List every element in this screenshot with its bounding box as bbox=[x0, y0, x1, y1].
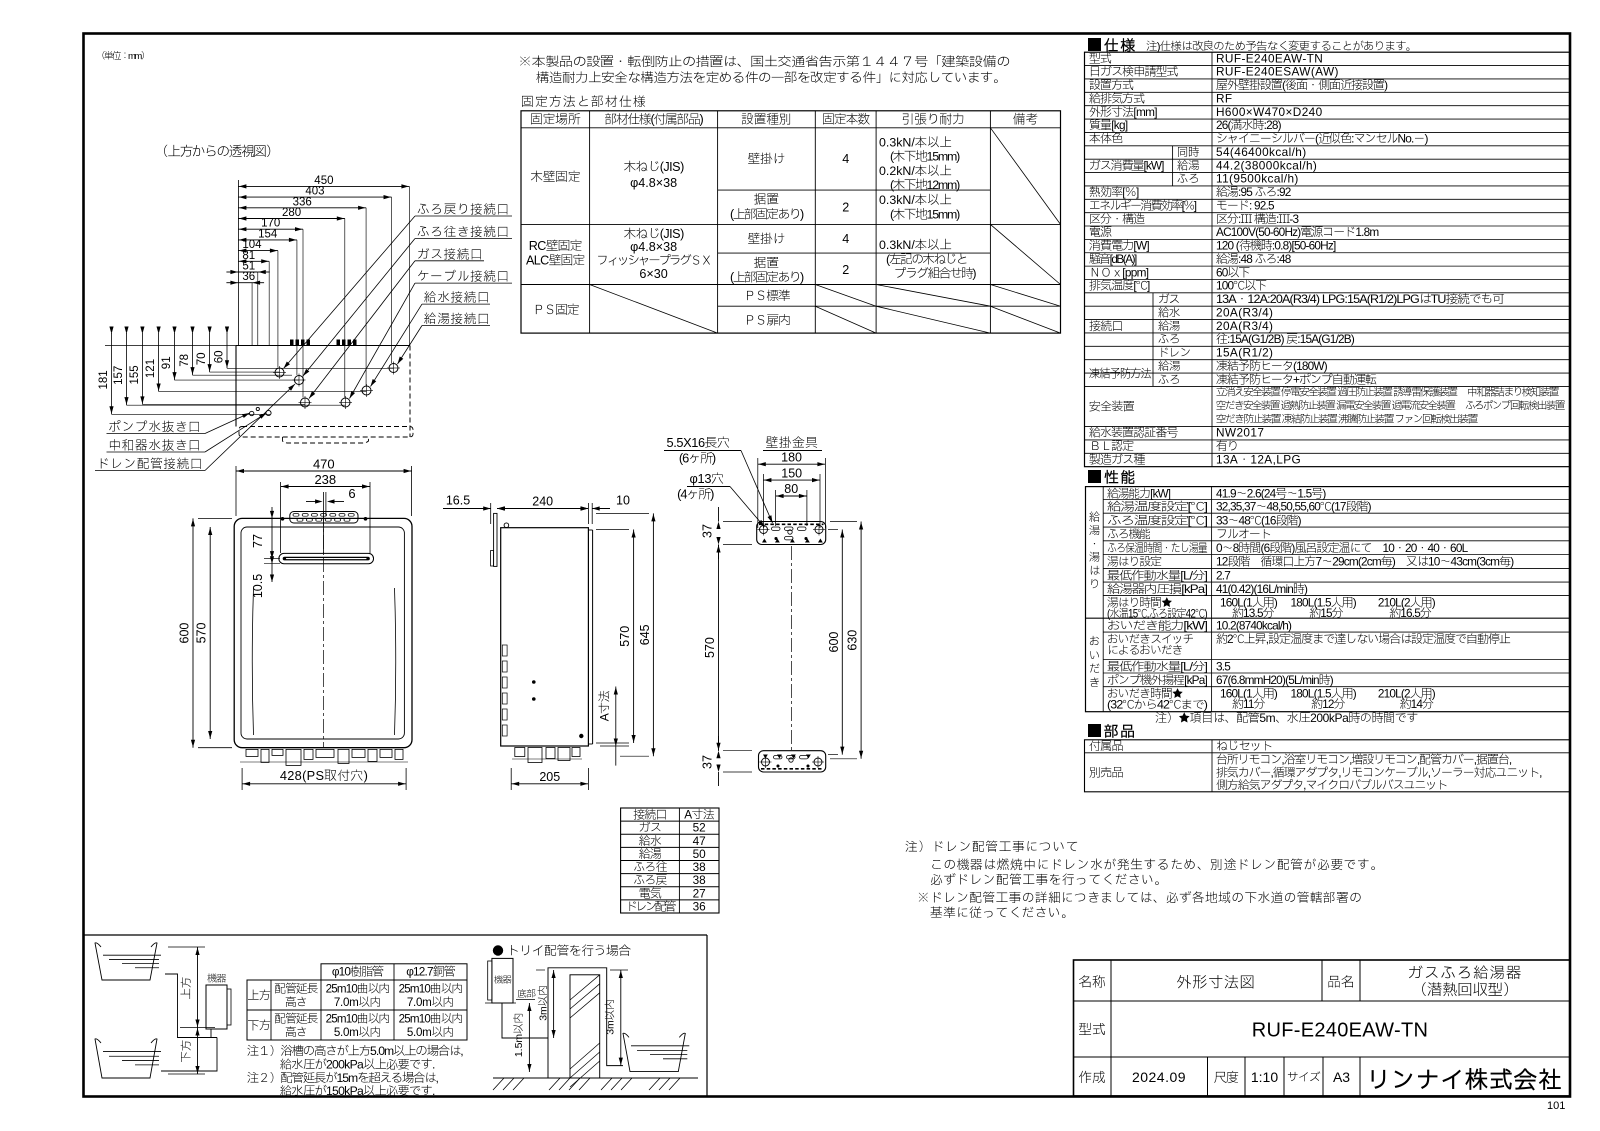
svg-text:6×30: 6×30 bbox=[639, 265, 667, 284]
svg-text:φ12.7銅管: φ12.7銅管 bbox=[406, 964, 456, 982]
svg-text:645: 645 bbox=[636, 624, 655, 645]
svg-text:240: 240 bbox=[532, 493, 553, 512]
svg-text:91: 91 bbox=[159, 356, 176, 369]
svg-text:5.0m以内: 5.0m以内 bbox=[334, 1025, 381, 1042]
svg-text:凍結予防方法: 凍結予防方法 bbox=[1089, 365, 1151, 383]
svg-text:下方: 下方 bbox=[179, 1040, 196, 1063]
svg-text:570: 570 bbox=[193, 623, 212, 644]
svg-text:作成: 作成 bbox=[1079, 1068, 1107, 1088]
svg-text:引張り耐力: 引張り耐力 bbox=[902, 111, 965, 130]
svg-text:底部: 底部 bbox=[518, 988, 536, 1002]
svg-text:238: 238 bbox=[314, 470, 336, 490]
svg-text:1.5m以内: 1.5m以内 bbox=[511, 1013, 527, 1057]
svg-text:RUF-E240EAW-TN: RUF-E240EAW-TN bbox=[1252, 1016, 1428, 1046]
svg-text:36: 36 bbox=[242, 269, 255, 286]
svg-text:高さ: 高さ bbox=[285, 995, 307, 1012]
svg-text:5.0m以内: 5.0m以内 bbox=[407, 1025, 454, 1042]
svg-text:600: 600 bbox=[176, 623, 195, 644]
svg-text:4: 4 bbox=[842, 150, 849, 169]
svg-text:7.0m以内: 7.0m以内 bbox=[407, 995, 454, 1012]
svg-text:固定場所: 固定場所 bbox=[530, 111, 581, 130]
svg-text:1:10: 1:10 bbox=[1251, 1068, 1278, 1089]
svg-text:下方: 下方 bbox=[247, 1018, 271, 1036]
svg-text:ふろ: ふろ bbox=[1158, 372, 1180, 389]
svg-text:（単位：mm）: （単位：mm） bbox=[96, 50, 149, 64]
svg-text:ドレン配管接続口: ドレン配管接続口 bbox=[97, 455, 203, 474]
svg-text:本体色: 本体色 bbox=[1089, 131, 1123, 149]
svg-text:備考: 備考 bbox=[1013, 111, 1038, 130]
svg-text:37: 37 bbox=[699, 524, 718, 538]
svg-text:別売品: 別売品 bbox=[1089, 764, 1124, 782]
svg-text:16.5: 16.5 bbox=[446, 492, 470, 511]
svg-text:給水接続口: 給水接続口 bbox=[423, 289, 491, 308]
svg-text:注）ドレン配管工事について: 注）ドレン配管工事について bbox=[905, 838, 1079, 857]
svg-text:木壁固定: 木壁固定 bbox=[530, 168, 580, 187]
svg-text:121: 121 bbox=[143, 359, 160, 378]
svg-text:205: 205 bbox=[539, 768, 560, 787]
svg-text:設置種別: 設置種別 bbox=[741, 111, 791, 130]
svg-text:10: 10 bbox=[616, 492, 630, 511]
svg-text:サイズ: サイズ bbox=[1287, 1070, 1321, 1087]
svg-text:600: 600 bbox=[825, 632, 844, 653]
svg-text:品名: 品名 bbox=[1328, 973, 1355, 993]
svg-text:A寸法: A寸法 bbox=[597, 691, 615, 722]
svg-text:中和器水抜き口: 中和器水抜き口 bbox=[109, 437, 202, 456]
svg-text:プラグ組合せ時): プラグ組合せ時) bbox=[894, 266, 976, 284]
svg-text:37: 37 bbox=[699, 755, 718, 769]
svg-text:3m以内: 3m以内 bbox=[536, 985, 552, 1021]
svg-text:上方: 上方 bbox=[179, 977, 196, 1000]
svg-text:80: 80 bbox=[784, 480, 798, 499]
svg-text:ケーブル接続口: ケーブル接続口 bbox=[417, 268, 510, 287]
svg-text:空だき防止装置 凍結防止装置 沸騰防止装置 ファン回転検出装: 空だき防止装置 凍結防止装置 沸騰防止装置 ファン回転検出装置 bbox=[1216, 411, 1478, 427]
svg-text:ポンプ水抜き口: ポンプ水抜き口 bbox=[109, 418, 202, 437]
svg-text:(6ヶ所): (6ヶ所) bbox=[679, 449, 716, 469]
svg-text:77: 77 bbox=[249, 534, 268, 548]
svg-text:ふろ: ふろ bbox=[1177, 172, 1199, 189]
svg-text:A3: A3 bbox=[1333, 1068, 1350, 1089]
svg-text:（上方からの透視図）: （上方からの透視図） bbox=[155, 142, 278, 162]
svg-text:570: 570 bbox=[701, 637, 720, 658]
svg-text:78: 78 bbox=[177, 354, 194, 367]
svg-text:基準に従ってください。: 基準に従ってください。 bbox=[930, 904, 1074, 923]
svg-text:155: 155 bbox=[127, 365, 144, 384]
svg-text:部材仕様(付属部品): 部材仕様(付属部品) bbox=[605, 111, 704, 130]
svg-text:2: 2 bbox=[842, 261, 849, 280]
svg-text:壁掛け: 壁掛け bbox=[748, 150, 786, 169]
svg-text:630: 630 bbox=[844, 630, 863, 651]
svg-text:(上部固定あり): (上部固定あり) bbox=[730, 269, 804, 288]
svg-text:構造耐力上安全な構造方法を定める件の一部を改定する件」に対応: 構造耐力上安全な構造方法を定める件の一部を改定する件」に対応しています。 bbox=[536, 68, 1006, 88]
svg-text:ドレン配管: ドレン配管 bbox=[626, 898, 676, 916]
svg-text:側方給気アダプタ,マイクロバブルバスユニット: 側方給気アダプタ,マイクロバブルバスユニット bbox=[1216, 777, 1447, 795]
svg-text:り: り bbox=[1089, 576, 1100, 593]
svg-text:製造ガス種: 製造ガス種 bbox=[1089, 451, 1145, 469]
svg-text:ＰＳ固定: ＰＳ固定 bbox=[532, 301, 579, 320]
svg-text:外形寸法図: 外形寸法図 bbox=[1176, 972, 1255, 995]
svg-text:安全装置: 安全装置 bbox=[1089, 399, 1135, 417]
svg-text:10.5: 10.5 bbox=[249, 574, 268, 598]
svg-text:ALC壁固定: ALC壁固定 bbox=[526, 252, 585, 271]
svg-text:固定本数: 固定本数 bbox=[822, 111, 870, 130]
svg-text:2024.09: 2024.09 bbox=[1132, 1068, 1186, 1089]
svg-text:給湯接続口: 給湯接続口 bbox=[423, 310, 491, 329]
svg-text:157: 157 bbox=[111, 366, 128, 385]
svg-text:280: 280 bbox=[282, 205, 301, 222]
svg-text:36: 36 bbox=[693, 898, 707, 916]
svg-text:7.0m以内: 7.0m以内 bbox=[334, 995, 381, 1012]
svg-text:13A・12A,LPG: 13A・12A,LPG bbox=[1216, 451, 1301, 469]
svg-text:給水圧が150kPa以上必要です.: 給水圧が150kPa以上必要です. bbox=[280, 1083, 435, 1101]
svg-text:上方: 上方 bbox=[247, 988, 271, 1006]
svg-text:接続口: 接続口 bbox=[1089, 318, 1123, 336]
svg-text:ＰＳ扉内: ＰＳ扉内 bbox=[743, 312, 790, 331]
svg-text:必ずドレン配管工事を行ってください。: 必ずドレン配管工事を行ってください。 bbox=[930, 871, 1168, 890]
svg-text:排気温度[℃]: 排気温度[℃] bbox=[1089, 278, 1150, 296]
svg-text:屋外壁掛設置(後面・側面近接設置): 屋外壁掛設置(後面・側面近接設置) bbox=[1216, 77, 1388, 95]
svg-text:(木下地15mm): (木下地15mm) bbox=[890, 207, 960, 225]
svg-text:尺度: 尺度 bbox=[1213, 1068, 1239, 1088]
svg-text:固定方法と部材仕様: 固定方法と部材仕様 bbox=[521, 92, 647, 112]
svg-text:12段階 循環口上方7〜29cm(2cm毎) 又は10〜43: 12段階 循環口上方7〜29cm(2cm毎) 又は10〜43cm(3cm毎) bbox=[1216, 554, 1514, 572]
svg-text:ふろ戻り接続口: ふろ戻り接続口 bbox=[417, 201, 510, 220]
svg-text:名称: 名称 bbox=[1079, 973, 1106, 993]
svg-text:ガス接続口: ガス接続口 bbox=[417, 245, 484, 264]
svg-text:ガス消費量[kW]: ガス消費量[kW] bbox=[1089, 157, 1164, 175]
svg-text:101: 101 bbox=[1547, 1097, 1565, 1114]
svg-text:壁掛け: 壁掛け bbox=[748, 230, 786, 249]
svg-text:（潜熱回収型）: （潜熱回収型） bbox=[1412, 979, 1518, 1002]
svg-text:φ10樹脂管: φ10樹脂管 bbox=[332, 964, 384, 982]
svg-text:570: 570 bbox=[616, 626, 635, 647]
svg-text:トリイ配管を行う場合: トリイ配管を行う場合 bbox=[507, 942, 632, 961]
svg-text:型式: 型式 bbox=[1079, 1020, 1106, 1040]
svg-text:4: 4 bbox=[842, 230, 849, 249]
svg-text:高さ: 高さ bbox=[285, 1025, 307, 1042]
svg-text:約2℃上昇,設定温度まで達しない場合は設定温度で自動停止: 約2℃上昇,設定温度まで達しない場合は設定温度で自動停止 bbox=[1216, 631, 1510, 649]
svg-text:によるおいだき: によるおいだき bbox=[1107, 643, 1183, 660]
svg-text:φ4.8×38: φ4.8×38 bbox=[630, 174, 677, 193]
svg-text:リンナイ株式会社: リンナイ株式会社 bbox=[1367, 1065, 1563, 1099]
svg-text:3m以内: 3m以内 bbox=[603, 999, 619, 1035]
svg-text:注）★項目は、配管5m、水圧200kPa時の時間です: 注）★項目は、配管5m、水圧200kPa時の時間です bbox=[1155, 710, 1418, 728]
svg-text:(4ヶ所): (4ヶ所) bbox=[677, 485, 714, 505]
svg-text:ＰＳ標準: ＰＳ標準 bbox=[743, 287, 790, 306]
svg-text:6: 6 bbox=[348, 484, 355, 504]
svg-text:2: 2 bbox=[842, 199, 849, 218]
svg-text:き: き bbox=[1089, 674, 1100, 691]
svg-text:付属品: 付属品 bbox=[1089, 738, 1124, 756]
svg-text:機器: 機器 bbox=[494, 974, 513, 988]
svg-text:428(PS取付穴): 428(PS取付穴) bbox=[280, 766, 368, 786]
svg-text:70: 70 bbox=[194, 352, 211, 365]
svg-text:60: 60 bbox=[212, 351, 229, 364]
svg-text:約13.5分 約15分 約16.5分: 約13.5分 約15分 約16.5分 bbox=[1232, 605, 1432, 623]
svg-text:ふろ往き接続口: ふろ往き接続口 bbox=[417, 223, 510, 242]
svg-text:(上部固定あり): (上部固定あり) bbox=[730, 206, 804, 225]
